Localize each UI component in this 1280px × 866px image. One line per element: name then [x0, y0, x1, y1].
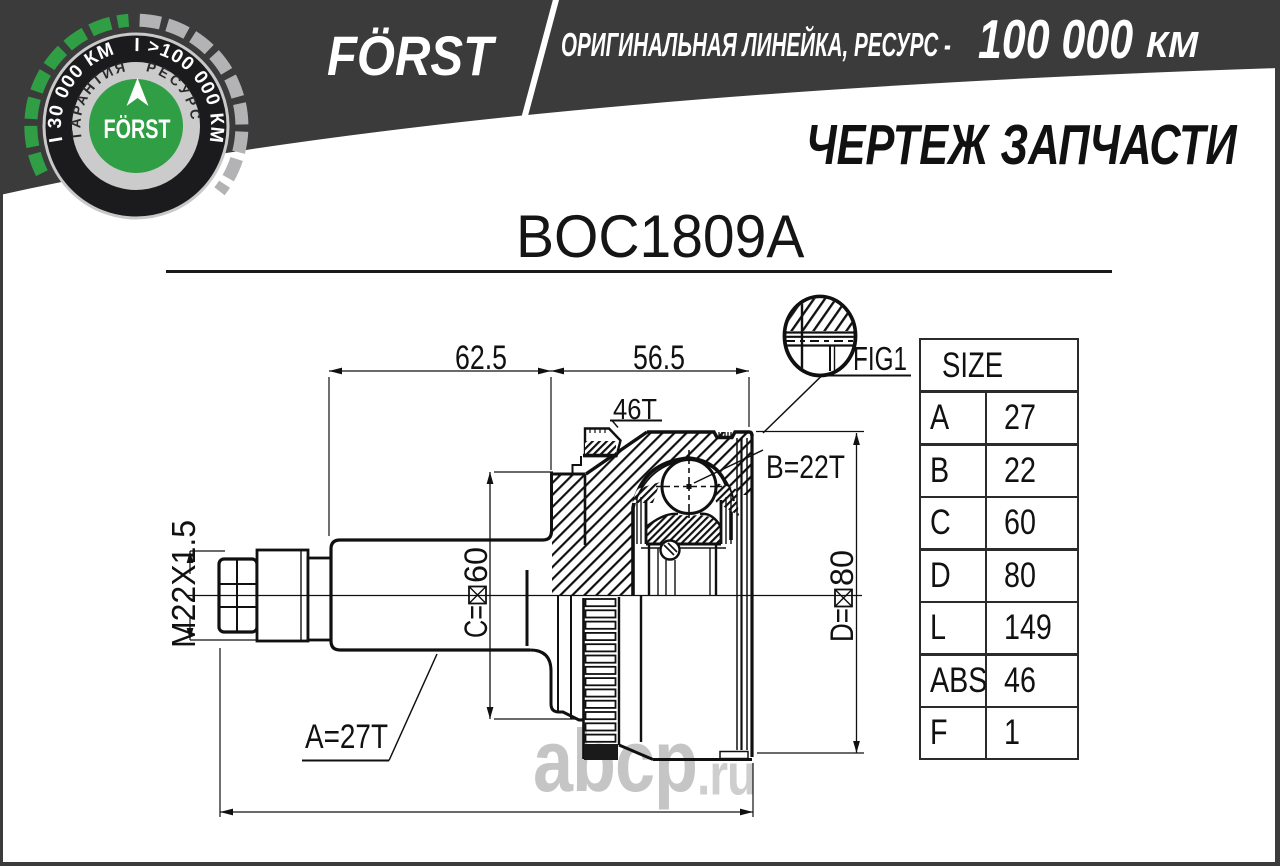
svg-text:FIG1: FIG1	[853, 340, 907, 377]
svg-text:B=22T: B=22T	[766, 449, 845, 485]
svg-text:60: 60	[458, 547, 494, 583]
svg-text:D=: D=	[824, 608, 860, 642]
svg-text:abcp.ru: abcp.ru	[533, 712, 755, 810]
svg-text:A=27T: A=27T	[305, 718, 388, 756]
svg-text:80: 80	[824, 550, 860, 586]
svg-text:M22X1.5: M22X1.5	[165, 520, 202, 648]
svg-text:C=: C=	[458, 605, 494, 638]
svg-text:62.5: 62.5	[455, 339, 507, 377]
svg-text:56.5: 56.5	[633, 339, 685, 377]
